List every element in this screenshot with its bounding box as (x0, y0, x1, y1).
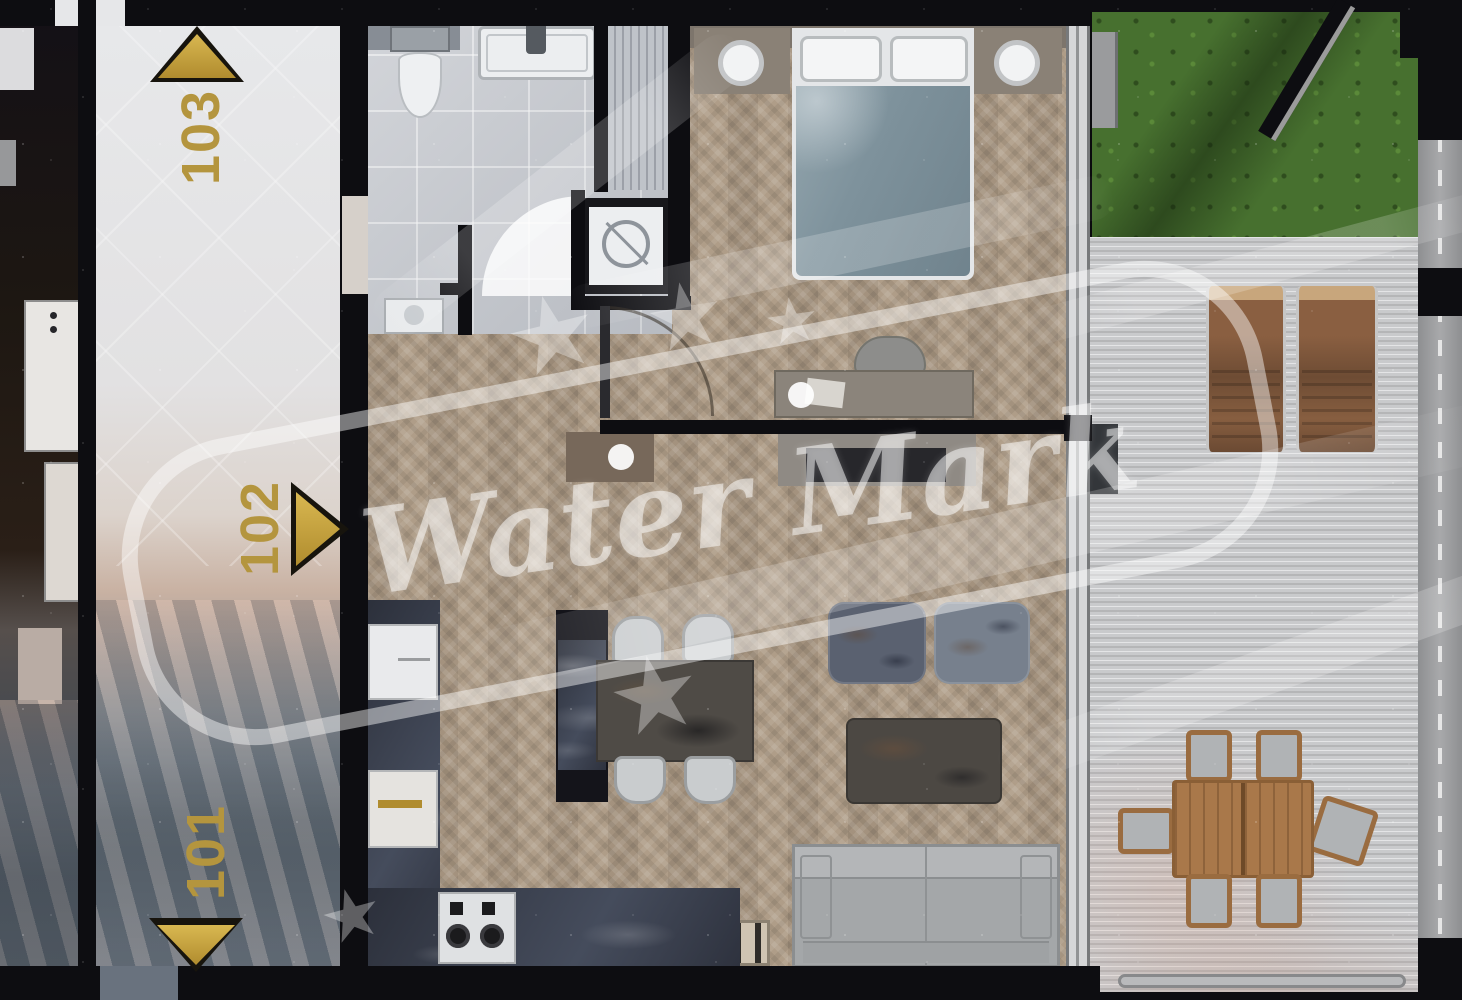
terrace-railing (1118, 974, 1406, 988)
outdoor-chair (1186, 730, 1232, 782)
corridor-corner (0, 28, 34, 90)
wall-hallway-left (78, 0, 96, 1000)
cooktop-burner (480, 924, 504, 948)
wall-bottom-hallway-gap (100, 966, 178, 1000)
cooktop-knob (450, 902, 463, 915)
sofa-armrest-left (800, 855, 832, 939)
fence-post (1418, 938, 1462, 1000)
unit-label-103: 103 (170, 89, 232, 185)
coffee-table (846, 718, 1002, 804)
pouf-right (934, 602, 1030, 684)
kitchen-counter-bottom (368, 888, 740, 966)
lamp-right-icon (994, 40, 1040, 86)
fence-post (1418, 268, 1462, 316)
grass-patch (1092, 12, 1418, 237)
sofa-armrest-right (1020, 855, 1052, 939)
bath-faucet (526, 24, 546, 54)
cooktop-knob (482, 902, 495, 915)
outdoor-dining-table (1172, 780, 1314, 878)
outdoor-chair (1186, 874, 1232, 928)
fence-dashed-line (1438, 0, 1442, 1000)
oven-gold-handle (378, 800, 422, 808)
outdoor-chair (1256, 874, 1302, 928)
oven-icon (368, 770, 438, 848)
entry-panel (18, 628, 62, 704)
corridor-sliver (0, 140, 16, 186)
sofa (792, 844, 1060, 968)
outdoor-chair (1118, 808, 1174, 854)
pillow-right (890, 36, 968, 82)
cooktop-burner (446, 924, 470, 948)
wall-corner-top-right (1400, 0, 1462, 58)
unit-label-101: 101 (175, 804, 237, 900)
hallway-door-opening (342, 196, 368, 294)
wall-top (0, 0, 1090, 26)
floor-plan: 103 102 101 Water Mark ★ ★ ★ ★ ★ (0, 0, 1462, 1000)
door-handle-dot (50, 326, 57, 333)
grass-edge-strip (1092, 32, 1118, 128)
watermark-star: ★ (760, 286, 824, 355)
watermark-star: ★ (638, 266, 733, 369)
dining-chair (684, 756, 736, 804)
sofa-seat-band (803, 941, 1049, 963)
outdoor-chair (1256, 730, 1302, 782)
toilet-tank (390, 26, 450, 52)
wall-bottom-terrace (1100, 992, 1462, 1000)
pillow-left (800, 36, 882, 82)
door-handle-dot (50, 312, 57, 319)
